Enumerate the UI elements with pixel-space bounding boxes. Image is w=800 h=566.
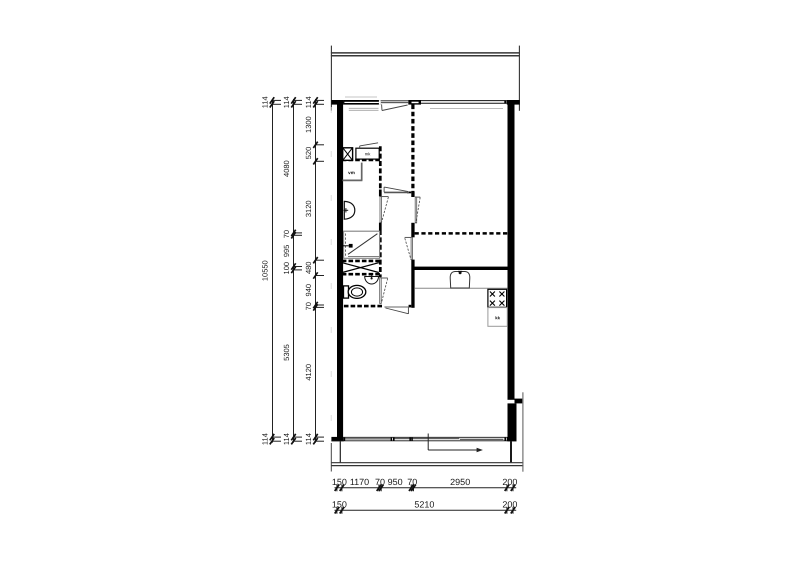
svg-text:1300: 1300 (304, 116, 313, 133)
svg-text:114: 114 (304, 96, 313, 108)
svg-text:114: 114 (260, 433, 269, 445)
svg-text:70: 70 (407, 477, 417, 487)
svg-text:200: 200 (502, 477, 517, 487)
svg-text:1170: 1170 (350, 477, 369, 487)
svg-text:kk: kk (495, 315, 500, 320)
svg-text:4120: 4120 (304, 364, 313, 381)
svg-text:5210: 5210 (414, 500, 434, 510)
svg-text:70: 70 (282, 230, 291, 238)
svg-text:10550: 10550 (260, 260, 269, 281)
svg-text:114: 114 (282, 96, 291, 108)
svg-text:150: 150 (332, 500, 347, 510)
svg-text:70: 70 (375, 477, 385, 487)
svg-text:mk: mk (365, 151, 372, 156)
svg-text:70: 70 (304, 302, 313, 310)
svg-text:4080: 4080 (282, 160, 291, 177)
svg-text:114: 114 (260, 96, 269, 108)
svg-text:995: 995 (282, 245, 291, 258)
svg-text:520: 520 (304, 147, 313, 160)
svg-text:950: 950 (388, 477, 403, 487)
svg-text:vm: vm (348, 170, 355, 175)
svg-text:5305: 5305 (282, 344, 291, 361)
svg-text:150: 150 (332, 477, 347, 487)
svg-text:114: 114 (282, 433, 291, 445)
svg-text:480: 480 (304, 262, 313, 275)
svg-text:3120: 3120 (304, 200, 313, 217)
svg-text:100: 100 (282, 262, 291, 275)
svg-text:114: 114 (304, 433, 313, 445)
svg-text:200: 200 (502, 500, 517, 510)
svg-text:940: 940 (304, 284, 313, 297)
svg-text:2950: 2950 (450, 477, 470, 487)
